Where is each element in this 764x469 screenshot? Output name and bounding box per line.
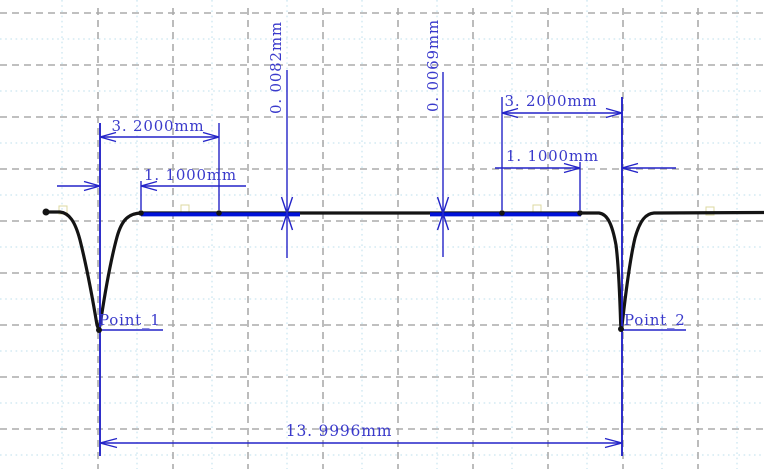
profile-measurement-view: 3. 2000mm 1. 1000mm 0. 0082mm 0. 0069mm …	[0, 0, 764, 469]
dim-label-right-3-2: 3. 2000mm	[505, 92, 598, 110]
segment-marker	[216, 210, 222, 216]
dim-label-right-1-1: 1. 1000mm	[506, 147, 599, 165]
profile-plot: 3. 2000mm 1. 1000mm 0. 0082mm 0. 0069mm …	[0, 0, 764, 469]
trace-start-marker	[43, 209, 50, 216]
dim-label-0-0082: 0. 0082mm	[267, 21, 285, 114]
segment-marker	[577, 210, 583, 216]
dim-label-left-3-2: 3. 2000mm	[112, 117, 205, 135]
dim-label-left-1-1: 1. 1000mm	[144, 166, 237, 184]
segment-marker	[138, 210, 144, 216]
point1-label: Point_1	[99, 311, 161, 329]
dim-label-0-0069: 0. 0069mm	[424, 19, 442, 112]
grid	[0, 0, 764, 469]
dim-label-total: 13. 9996mm	[286, 422, 392, 440]
segment-marker	[499, 210, 505, 216]
point2-label: Point_2	[624, 311, 686, 329]
